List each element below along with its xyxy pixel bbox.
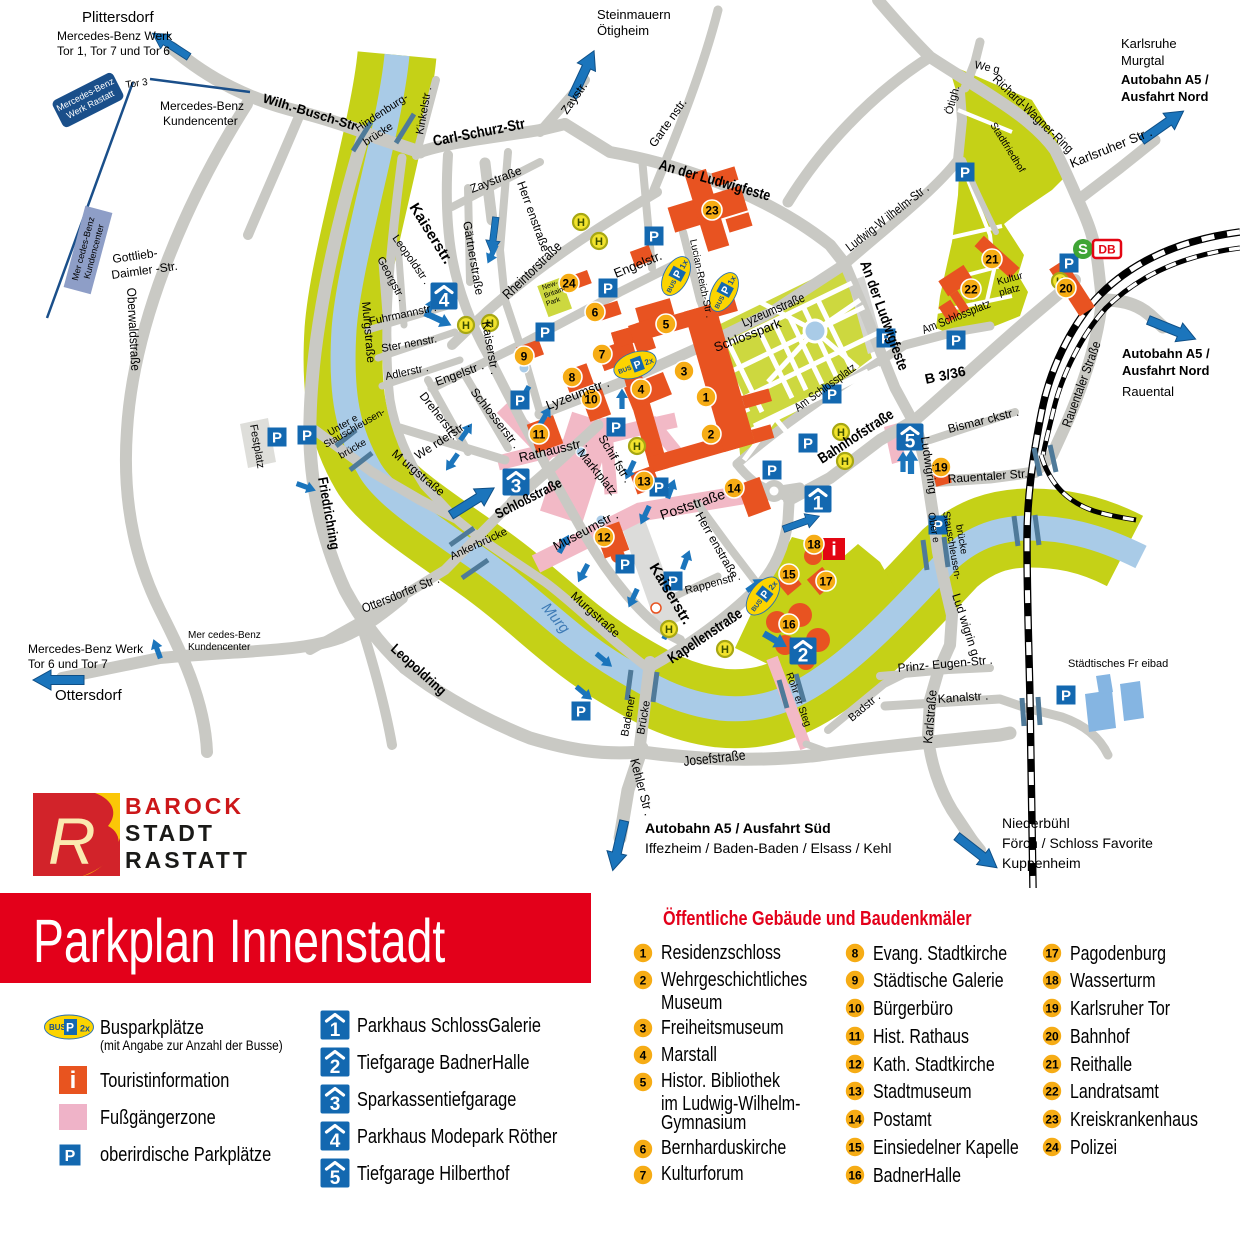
svg-text:5: 5 [640, 1076, 647, 1090]
svg-text:3: 3 [330, 1094, 341, 1115]
svg-text:Museum: Museum [661, 990, 722, 1013]
svg-text:12: 12 [597, 531, 611, 545]
svg-text:Ötigheim: Ötigheim [597, 23, 649, 38]
svg-text:Iffezheim / Baden-Baden / Elsa: Iffezheim / Baden-Baden / Elsass / Kehl [645, 840, 891, 856]
svg-text:17: 17 [819, 575, 833, 589]
svg-text:6: 6 [640, 1143, 647, 1157]
svg-text:Residenzschloss: Residenzschloss [661, 940, 781, 963]
svg-text:Autobahn A5 /: Autobahn A5 / [1122, 346, 1210, 361]
svg-text:Landratsamt: Landratsamt [1070, 1079, 1159, 1102]
svg-text:Plittersdorf: Plittersdorf [82, 9, 155, 26]
svg-text:2: 2 [798, 646, 809, 667]
svg-text:13: 13 [848, 1085, 862, 1099]
svg-text:Mercedes-Benz Werk: Mercedes-Benz Werk [57, 29, 173, 43]
svg-text:5: 5 [330, 1168, 341, 1189]
svg-text:Bürgerbüro: Bürgerbüro [873, 996, 953, 1019]
svg-text:3: 3 [681, 365, 688, 379]
svg-text:15: 15 [782, 568, 796, 582]
svg-text:Ausfahrt Nord: Ausfahrt Nord [1122, 363, 1209, 378]
svg-text:Pagodenburg: Pagodenburg [1070, 941, 1166, 964]
svg-text:Mer cedes-Benz: Mer cedes-Benz [188, 630, 261, 641]
svg-text:P: P [66, 1021, 74, 1035]
svg-text:12: 12 [848, 1058, 862, 1072]
svg-text:13: 13 [637, 475, 651, 489]
svg-text:2: 2 [330, 1057, 341, 1078]
svg-text:7: 7 [599, 348, 606, 362]
svg-text:Stadtmuseum: Stadtmuseum [873, 1079, 972, 1102]
svg-text:17: 17 [1045, 947, 1059, 961]
svg-text:4: 4 [330, 1131, 341, 1152]
svg-text:Reithalle: Reithalle [1070, 1052, 1132, 1075]
svg-text:Städtische Galerie: Städtische Galerie [873, 968, 1004, 991]
svg-text:Autobahn A5 / Ausfahrt Süd: Autobahn A5 / Ausfahrt Süd [645, 820, 831, 836]
svg-text:H: H [841, 456, 849, 468]
svg-text:Freiheitsmuseum: Freiheitsmuseum [661, 1015, 784, 1038]
svg-text:2: 2 [708, 428, 715, 442]
svg-text:Gymnasium: Gymnasium [661, 1110, 746, 1133]
svg-text:Wehrgeschichtliches: Wehrgeschichtliches [661, 967, 807, 990]
svg-text:Fußgängerzone: Fußgängerzone [100, 1105, 216, 1128]
svg-text:18: 18 [1045, 974, 1059, 988]
svg-text:1: 1 [330, 1020, 341, 1041]
svg-text:Postamt: Postamt [873, 1107, 932, 1130]
svg-text:11: 11 [533, 428, 546, 442]
svg-text:22: 22 [964, 283, 978, 297]
svg-text:Förch / Schloss Favorite: Förch / Schloss Favorite [1002, 835, 1153, 851]
svg-text:Touristinformation: Touristinformation [100, 1068, 229, 1091]
svg-text:18: 18 [807, 538, 821, 552]
svg-text:Kath. Stadtkirche: Kath. Stadtkirche [873, 1052, 995, 1075]
svg-text:H: H [577, 217, 585, 229]
svg-text:Parkhaus SchlossGalerie: Parkhaus SchlossGalerie [357, 1013, 541, 1036]
svg-text:(mit Angabe zur Anzahl der Bus: (mit Angabe zur Anzahl der Busse) [100, 1037, 283, 1053]
svg-text:H: H [665, 624, 673, 636]
svg-text:Tor 6 und Tor 7: Tor 6 und Tor 7 [28, 657, 108, 671]
svg-text:Bahnhof: Bahnhof [1070, 1024, 1130, 1047]
svg-text:1: 1 [813, 494, 824, 515]
svg-text:R: R [48, 804, 96, 878]
svg-text:P: P [65, 1148, 76, 1165]
svg-text:Kulturforum: Kulturforum [661, 1161, 744, 1184]
svg-text:1: 1 [640, 947, 647, 961]
svg-text:Öffentliche Gebäude und Bauden: Öffentliche Gebäude und Baudenkmäler [663, 906, 972, 929]
svg-text:23: 23 [705, 204, 719, 218]
svg-text:1: 1 [703, 391, 710, 405]
svg-text:9: 9 [852, 974, 859, 988]
svg-text:Tiefgarage Hilberthof: Tiefgarage Hilberthof [357, 1161, 510, 1184]
svg-text:6: 6 [592, 306, 599, 320]
svg-text:5: 5 [663, 318, 670, 332]
svg-text:4: 4 [640, 1049, 647, 1063]
svg-text:23: 23 [1045, 1113, 1059, 1127]
svg-text:Kundencenter: Kundencenter [188, 642, 251, 653]
svg-text:Kundencenter: Kundencenter [163, 114, 238, 128]
svg-text:20: 20 [1059, 282, 1073, 296]
svg-text:Rauental: Rauental [1122, 384, 1174, 399]
svg-text:Mercedes-Benz: Mercedes-Benz [160, 99, 244, 113]
svg-text:2: 2 [640, 974, 647, 988]
svg-text:Parkplan Innenstadt: Parkplan Innenstadt [33, 908, 445, 976]
svg-text:Ottersdorf: Ottersdorf [55, 687, 123, 704]
svg-text:BAROCK: BAROCK [125, 793, 244, 819]
svg-text:8: 8 [852, 947, 859, 961]
svg-text:9: 9 [521, 350, 528, 364]
svg-text:Karlsruher Tor: Karlsruher Tor [1070, 996, 1170, 1019]
svg-text:Tiefgarage BadnerHalle: Tiefgarage BadnerHalle [357, 1050, 529, 1073]
svg-text:Mercedes-Benz Werk: Mercedes-Benz Werk [28, 642, 144, 656]
svg-text:BadnerHalle: BadnerHalle [873, 1163, 961, 1186]
svg-text:Wasserturm: Wasserturm [1070, 968, 1156, 991]
svg-text:Histor. Bibliothek: Histor. Bibliothek [661, 1068, 781, 1091]
svg-text:Autobahn A5 /: Autobahn A5 / [1121, 72, 1209, 87]
svg-text:19: 19 [1045, 1002, 1059, 1016]
svg-text:RASTATT: RASTATT [125, 847, 250, 873]
svg-text:14: 14 [727, 482, 741, 496]
svg-text:i: i [831, 540, 836, 561]
svg-text:H: H [462, 320, 470, 332]
svg-text:Parkhaus Modepark Röther: Parkhaus Modepark Röther [357, 1124, 557, 1147]
svg-text:Polizei: Polizei [1070, 1135, 1117, 1158]
svg-text:Karlsruhe: Karlsruhe [1121, 36, 1177, 51]
svg-text:Murgtal: Murgtal [1121, 53, 1164, 68]
svg-text:8: 8 [569, 371, 576, 385]
svg-text:Kreiskrankenhaus: Kreiskrankenhaus [1070, 1107, 1198, 1130]
svg-text:4: 4 [638, 383, 645, 397]
svg-text:Marstall: Marstall [661, 1042, 717, 1065]
svg-text:20: 20 [1045, 1030, 1059, 1044]
svg-text:21: 21 [1045, 1058, 1059, 1072]
svg-text:H: H [595, 236, 603, 248]
svg-text:STADT: STADT [125, 820, 215, 846]
svg-text:24: 24 [1045, 1141, 1059, 1155]
svg-text:Sparkassentiefgarage: Sparkassentiefgarage [357, 1087, 516, 1110]
svg-text:22: 22 [1045, 1085, 1059, 1099]
svg-text:S: S [1078, 241, 1088, 258]
svg-text:Busparkplätze: Busparkplätze [100, 1015, 204, 1038]
svg-text:Einsiedelner Kapelle: Einsiedelner Kapelle [873, 1135, 1019, 1158]
svg-text:4: 4 [439, 291, 450, 312]
svg-text:H: H [633, 441, 641, 453]
svg-text:7: 7 [640, 1169, 647, 1183]
svg-text:Tor 1, Tor 7 und Tor 6: Tor 1, Tor 7 und Tor 6 [57, 44, 170, 58]
svg-text:2x: 2x [80, 1024, 90, 1034]
svg-text:Niederbühl: Niederbühl [1002, 815, 1070, 831]
svg-text:16: 16 [782, 618, 796, 632]
svg-text:Städtisches Fr eibad: Städtisches Fr eibad [1068, 658, 1168, 670]
svg-text:DB: DB [1098, 243, 1116, 257]
svg-text:Ausfahrt Nord: Ausfahrt Nord [1121, 89, 1208, 104]
svg-text:21: 21 [985, 253, 999, 267]
svg-text:Steinmauern: Steinmauern [597, 7, 671, 22]
svg-text:H: H [721, 644, 729, 656]
svg-text:5: 5 [905, 432, 916, 453]
svg-text:Kuppenheim: Kuppenheim [1002, 855, 1081, 871]
svg-text:Hist. Rathaus: Hist. Rathaus [873, 1024, 969, 1047]
svg-text:3: 3 [640, 1022, 647, 1036]
svg-text:15: 15 [848, 1141, 862, 1155]
svg-text:16: 16 [848, 1169, 862, 1183]
svg-text:oberirdische Parkplätze: oberirdische Parkplätze [100, 1142, 271, 1165]
svg-text:Bernharduskirche: Bernharduskirche [661, 1135, 786, 1158]
svg-text:11: 11 [849, 1030, 862, 1044]
svg-text:10: 10 [848, 1002, 862, 1016]
svg-text:BUS: BUS [49, 1023, 67, 1032]
svg-text:i: i [70, 1067, 77, 1094]
svg-text:14: 14 [848, 1113, 862, 1127]
svg-text:Evang. Stadtkirche: Evang. Stadtkirche [873, 941, 1007, 964]
